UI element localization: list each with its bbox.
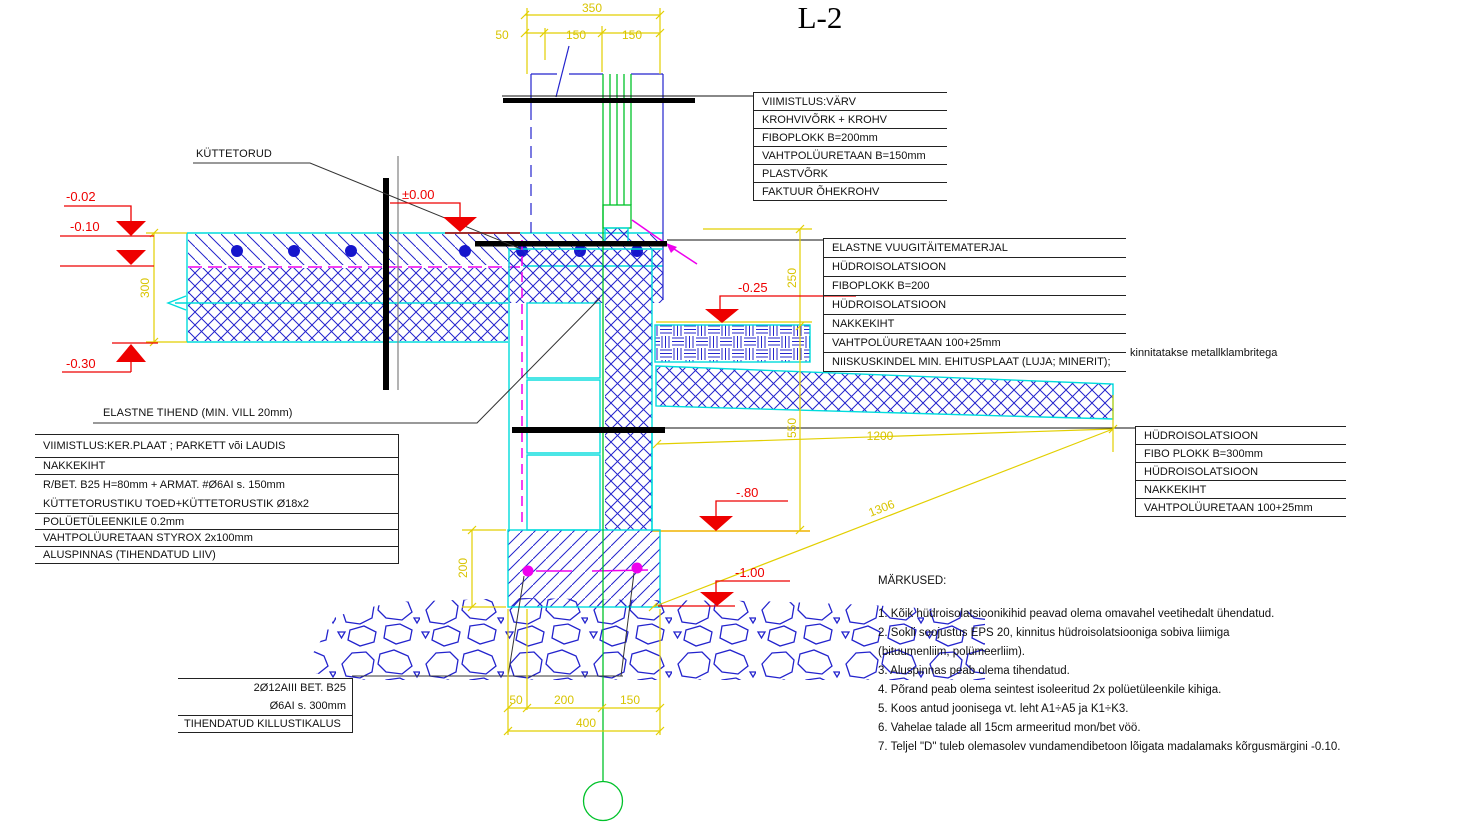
- table-row: HÜDROISOLATSIOON: [824, 296, 1126, 315]
- elevation-080: -.80: [699, 485, 788, 531]
- table-row: VIIMISTLUS:VÄRV: [754, 93, 947, 111]
- table-row: PLASTVÕRK: [754, 165, 947, 183]
- elastne-tihend-label: ELASTNE TIHEND (MIN. VILL 20mm): [103, 407, 293, 419]
- dim-150a: 150: [566, 28, 586, 42]
- floor-layers-table: VIIMISTLUS:KER.PLAAT ; PARKETT või LAUDI…: [35, 434, 399, 564]
- table-row: FIBOPLOKK B=200: [824, 277, 1126, 296]
- table-row: VAHTPOLÜURETAAN B=150mm: [754, 147, 947, 165]
- table-row: NAKKEKIHT: [1136, 481, 1346, 499]
- footing: [508, 530, 660, 607]
- svg-text:-0.10: -0.10: [70, 219, 100, 234]
- foundation-layers-table: HÜDROISOLATSIOON FIBO PLOKK B=300mm HÜDR…: [1135, 426, 1346, 517]
- board-fixing-note: kinnitatakse metallklambritega: [1130, 347, 1277, 359]
- dim-300: 300: [138, 278, 152, 298]
- plinth-wall: [508, 240, 663, 530]
- exterior-board: [655, 325, 810, 362]
- dim-250: 250: [785, 268, 799, 288]
- svg-text:-0.30: -0.30: [66, 356, 96, 371]
- dim-200-footing: 200: [456, 558, 470, 578]
- table-row: VAHTPOLÜURETAAN 100+25mm: [1136, 499, 1346, 517]
- table-row: Ø6AI s. 300mm: [178, 697, 352, 716]
- dim-350: 350: [582, 1, 602, 15]
- table-row: HÜDROISOLATSIOON: [1136, 427, 1346, 445]
- kuttetorud-label: KÜTTETORUD: [196, 148, 272, 160]
- table-row: ALUSPINNAS (TIHENDATUD LIIV): [35, 547, 398, 564]
- note-item: 7. Teljel "D" tuleb olemasolev vundamend…: [878, 738, 1418, 757]
- dim-50: 50: [495, 28, 509, 42]
- elevation-100: -1.00: [658, 565, 790, 606]
- elevation-030: -0.30: [62, 343, 158, 372]
- dim-b150: 150: [620, 693, 640, 707]
- note-item: 6. Vahelae talade all 15cm armeeritud mo…: [878, 719, 1418, 738]
- svg-text:±0.00: ±0.00: [402, 187, 434, 202]
- table-row: KÜTTETORUSTIKU TOED+KÜTTETORUSTIK Ø18x2: [35, 495, 398, 514]
- table-row: NIISKUSKINDEL MIN. EHITUSPLAAT (LUJA; MI…: [824, 353, 1126, 372]
- plinth-layers-table: ELASTNE VUUGITÄITEMATERJAL HÜDROISOLATSI…: [823, 238, 1126, 372]
- rebar-dot: [632, 563, 643, 574]
- elevation-000: ±0.00: [390, 187, 477, 232]
- drawing-canvas: 350 50 150 150 300 250 550 200 50 200 15…: [0, 0, 1462, 835]
- note-item: 1. Kõik hüdroisolatsioonikihid peavad ol…: [878, 605, 1418, 624]
- table-row: KROHVIVÕRK + KROHV: [754, 111, 947, 129]
- table-row: POLÜETÜLEENKILE 0.2mm: [35, 514, 398, 530]
- svg-text:-.80: -.80: [736, 485, 758, 500]
- table-row: NAKKEKIHT: [35, 458, 398, 475]
- wall-layers-table: VIIMISTLUS:VÄRV KROHVIVÕRK + KROHV FIBOP…: [753, 92, 947, 201]
- footing-rebar-table: 2Ø12AIII BET. B25 Ø6AI s. 300mm TIHENDAT…: [178, 678, 353, 733]
- note-item: 3. Aluspinnas peab olema tihendatud.: [878, 662, 1418, 681]
- notes-heading: MÄRKUSED:: [878, 572, 1418, 591]
- existing-wall-bar: [383, 178, 389, 390]
- table-row: FAKTUUR ÕHEKROHV: [754, 183, 947, 201]
- dim-550: 550: [785, 418, 799, 438]
- table-row: FIBOPLOKK B=200mm: [754, 129, 947, 147]
- drawing-title: L-2: [775, 0, 865, 36]
- note-item: 2. Sokli soojustus EPS 20, kinnitus hüdr…: [878, 624, 1418, 662]
- svg-text:-0.25: -0.25: [738, 280, 768, 295]
- table-row: HÜDROISOLATSIOON: [1136, 463, 1346, 481]
- table-row: VAHTPOLÜURETAAN STYROX 2x100mm: [35, 530, 398, 547]
- table-row: VIIMISTLUS:KER.PLAAT ; PARKETT või LAUDI…: [35, 435, 398, 458]
- note-item: 4. Põrand peab olema seintest isoleeritu…: [878, 681, 1418, 700]
- table-row: FIBO PLOKK B=300mm: [1136, 445, 1346, 463]
- dim-150b: 150: [622, 28, 642, 42]
- svg-text:-0.02: -0.02: [66, 189, 96, 204]
- note-item: 5. Koos antud joonisega vt. leht A1÷A5 j…: [878, 700, 1418, 719]
- dim-1200: 1200: [867, 429, 894, 443]
- table-row: ELASTNE VUUGITÄITEMATERJAL: [824, 239, 1126, 258]
- table-row: 2Ø12AIII BET. B25: [178, 679, 352, 697]
- axis-bubble: [584, 782, 623, 821]
- table-row: VAHTPOLÜURETAAN 100+25mm: [824, 334, 1126, 353]
- rebar-dot: [523, 566, 534, 577]
- table-row: TIHENDATUD KILLUSTIKALUS: [178, 716, 352, 733]
- fibo-blocks: [527, 303, 600, 530]
- table-row: HÜDROISOLATSIOON: [824, 258, 1126, 277]
- dim-b400: 400: [576, 716, 596, 730]
- dim-b50: 50: [509, 693, 523, 707]
- notes-section: MÄRKUSED: 1. Kõik hüdroisolatsioonikihid…: [878, 572, 1418, 757]
- dim-b200: 200: [554, 693, 574, 707]
- svg-text:-1.00: -1.00: [735, 565, 765, 580]
- table-row: NAKKEKIHT: [824, 315, 1126, 334]
- table-row: R/BET. B25 H=80mm + ARMAT. #Ø6AI s. 150m…: [35, 475, 398, 495]
- wall-pipes-green: [603, 74, 631, 228]
- dim-1306: 1306: [867, 497, 897, 520]
